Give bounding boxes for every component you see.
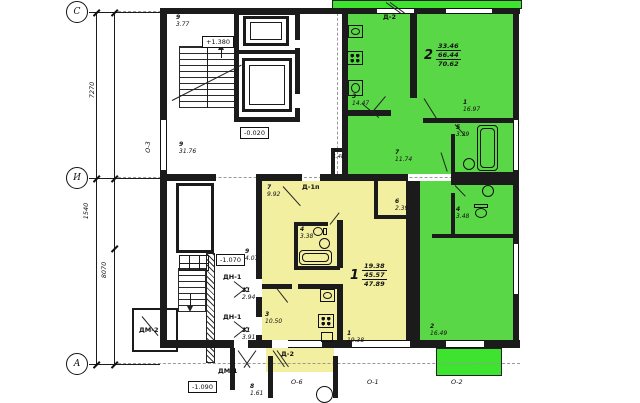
bathtub-inner-2: [480, 128, 495, 168]
dim-1540: 1540: [82, 194, 90, 228]
wall-segment: [256, 174, 302, 181]
wall-segment: [256, 335, 262, 343]
toilet-tank-icon: [323, 228, 327, 235]
door-label-d1p: Д-1п: [302, 183, 320, 191]
door-label-dm2: ДМ-2: [139, 326, 158, 334]
wall-segment: [295, 48, 300, 94]
apartment1-usable-area: 45.57: [362, 270, 387, 280]
apartment2-living-area: 33.46: [436, 42, 461, 50]
elevation-minus1090: -1.090: [188, 381, 217, 393]
apartment2-summary: 2 33.46 66.44 70.62: [424, 42, 461, 68]
dim-7270: 7270: [88, 73, 96, 107]
wall-segment: [345, 8, 379, 14]
room-label-common-11a: 112.94: [242, 287, 255, 301]
grid-bubble-s: С: [66, 1, 88, 23]
wall-segment: [89, 12, 160, 13]
wall-segment: [414, 8, 446, 14]
room-label-apt1-living: 119.38: [347, 330, 364, 344]
room-label-apt1-bath: 43.38: [300, 226, 313, 240]
wall-segment: [207, 46, 208, 108]
room-label-common-8: 81.61: [250, 383, 263, 397]
room-label-apt2-hall: 711.74: [395, 149, 412, 163]
window-label-o2: О-2: [451, 378, 463, 386]
apartment1-areas: 19.38 45.57 47.89: [362, 262, 387, 288]
room-label-common-9c: 94.07: [245, 248, 258, 262]
apartment1-living-area: 19.38: [362, 262, 387, 270]
wall-segment: [160, 340, 234, 348]
wall-segment: [374, 181, 378, 219]
wall-segment: [451, 172, 513, 176]
wall-segment: [239, 50, 295, 54]
room-label-apt2-kitchen: 314.47: [352, 93, 369, 107]
wall-segment: [410, 14, 417, 98]
wall-segment: [96, 12, 97, 364]
wall-segment: [294, 222, 298, 270]
stove-icon-2: [347, 51, 363, 65]
room-label-apt2-wc: 43.48: [456, 206, 469, 220]
wall-segment: [256, 181, 262, 279]
wall-segment: [89, 178, 160, 179]
washbasin-icon: [319, 238, 330, 249]
room-label-common-7: 71.48: [333, 149, 344, 160]
door-label-dn1-upper: ДН-1: [223, 273, 241, 281]
wall-segment: [451, 181, 513, 185]
floor-plan-canvas: С И А 7270 1540 8070 О-3 +1.380 -0.020 -…: [0, 0, 640, 400]
wall-segment: [410, 340, 446, 348]
wall-segment: [295, 108, 300, 122]
bathtub-inner: [302, 253, 329, 262]
room-label-common-9a: 93.77: [176, 14, 189, 28]
window-symbol: [513, 120, 519, 170]
door-label-d2-top: Д-2: [383, 13, 396, 21]
wall-segment: [160, 174, 216, 181]
bathtub-icon-2: [477, 125, 498, 171]
plan-box: [249, 65, 285, 105]
window-label-o1: О-1: [367, 378, 379, 386]
bathtub-icon: [299, 250, 332, 265]
room-label-apt2-bath: 53.29: [456, 124, 469, 138]
fridge-icon: [321, 332, 333, 342]
window-symbol: [160, 120, 167, 170]
stair-down-arrow-icon: [187, 306, 193, 312]
wall-segment: [451, 134, 455, 174]
wall-segment: [513, 170, 519, 244]
room-label-apt2-living2: 216.49: [430, 323, 447, 337]
room-label-common-9b: 931.76: [179, 141, 196, 155]
wall-segment: [451, 193, 455, 234]
grid-bubble-a: А: [66, 353, 88, 375]
plan-box: [250, 22, 282, 40]
grid-bubble-a-label: А: [74, 359, 81, 369]
axis-line: [118, 363, 520, 364]
apartment2-total-area: 70.62: [436, 60, 461, 68]
elevation-minus0020: -0.020: [240, 127, 269, 139]
kitchen-sink-bowl-2: [351, 28, 360, 35]
wall-segment: [89, 364, 160, 365]
elevation-minus1070: -1.070: [216, 254, 245, 266]
kitchen-sink-icon-2: [348, 25, 363, 38]
wall-segment: [423, 118, 513, 123]
washbasin-icon-3: [482, 185, 494, 197]
porch-column-circle: [316, 386, 333, 403]
apartment2-usable-area: 66.44: [436, 50, 461, 60]
room-label-apt2-living1: 116.97: [463, 99, 480, 113]
wall-segment: [333, 356, 338, 398]
window-label-o3: О-3: [144, 130, 152, 164]
window-label-o6: О-6: [291, 378, 303, 386]
wall-segment: [345, 110, 391, 116]
elevation-plus1380: +1.380: [202, 36, 234, 48]
kitchen-sink-icon: [320, 289, 335, 302]
stove-icon: [318, 314, 334, 328]
room-label-apt1-closet: 62.39: [395, 198, 408, 212]
apartment2-number: 2: [424, 48, 433, 63]
door-label-dn1-lower: ДН-1: [223, 313, 241, 321]
wall-segment: [432, 234, 513, 238]
grid-bubble-i-label: И: [73, 173, 81, 183]
toilet-icon: [313, 227, 323, 236]
wall-segment: [295, 10, 300, 40]
grid-bubble-i: И: [66, 167, 88, 189]
dim-8070: 8070: [100, 253, 108, 287]
apartment-fill: [420, 181, 513, 340]
apartment-fill: [262, 181, 406, 340]
fridge-inner-2: [351, 83, 360, 93]
wall-segment: [513, 8, 519, 120]
door-label-d2-bottom: Д-2: [281, 350, 294, 358]
wall-segment: [337, 284, 343, 340]
wall-segment: [179, 263, 209, 264]
window-symbol: [446, 8, 492, 14]
wall-segment: [256, 297, 262, 317]
wall-segment: [234, 117, 300, 122]
wall-segment: [294, 266, 340, 270]
door-swing-line: [244, 350, 257, 368]
apartment-fill: [436, 348, 502, 376]
wall-segment: [234, 10, 300, 15]
wall-segment: [268, 356, 273, 398]
door-label-dm1: ДМ-1: [218, 367, 237, 375]
stair-flight: [179, 46, 237, 108]
washbasin-icon-2: [463, 158, 475, 170]
wall-segment: [484, 340, 520, 348]
wall-segment: [337, 220, 343, 268]
apartment2-areas: 33.46 66.44 70.62: [436, 42, 461, 68]
apartment1-number: 1: [350, 268, 359, 283]
kitchen-sink-bowl: [323, 292, 332, 299]
room-label-common-11b: 113.91: [242, 327, 255, 341]
room-label-apt1-hall: 79.92: [267, 184, 280, 198]
apartment1-summary: 1 19.38 45.57 47.89: [350, 262, 387, 288]
wall-segment: [114, 12, 115, 364]
window-symbol: [513, 244, 519, 294]
grid-bubble-s-label: С: [74, 7, 81, 17]
toilet-icon-2: [475, 208, 487, 218]
apartment1-total-area: 47.89: [362, 280, 387, 288]
window-symbol: [288, 340, 322, 348]
window-symbol: [446, 340, 484, 348]
room-label-apt1-kitchen: 310.50: [265, 311, 282, 325]
plan-box: [176, 183, 214, 253]
wall-segment: [374, 215, 408, 219]
